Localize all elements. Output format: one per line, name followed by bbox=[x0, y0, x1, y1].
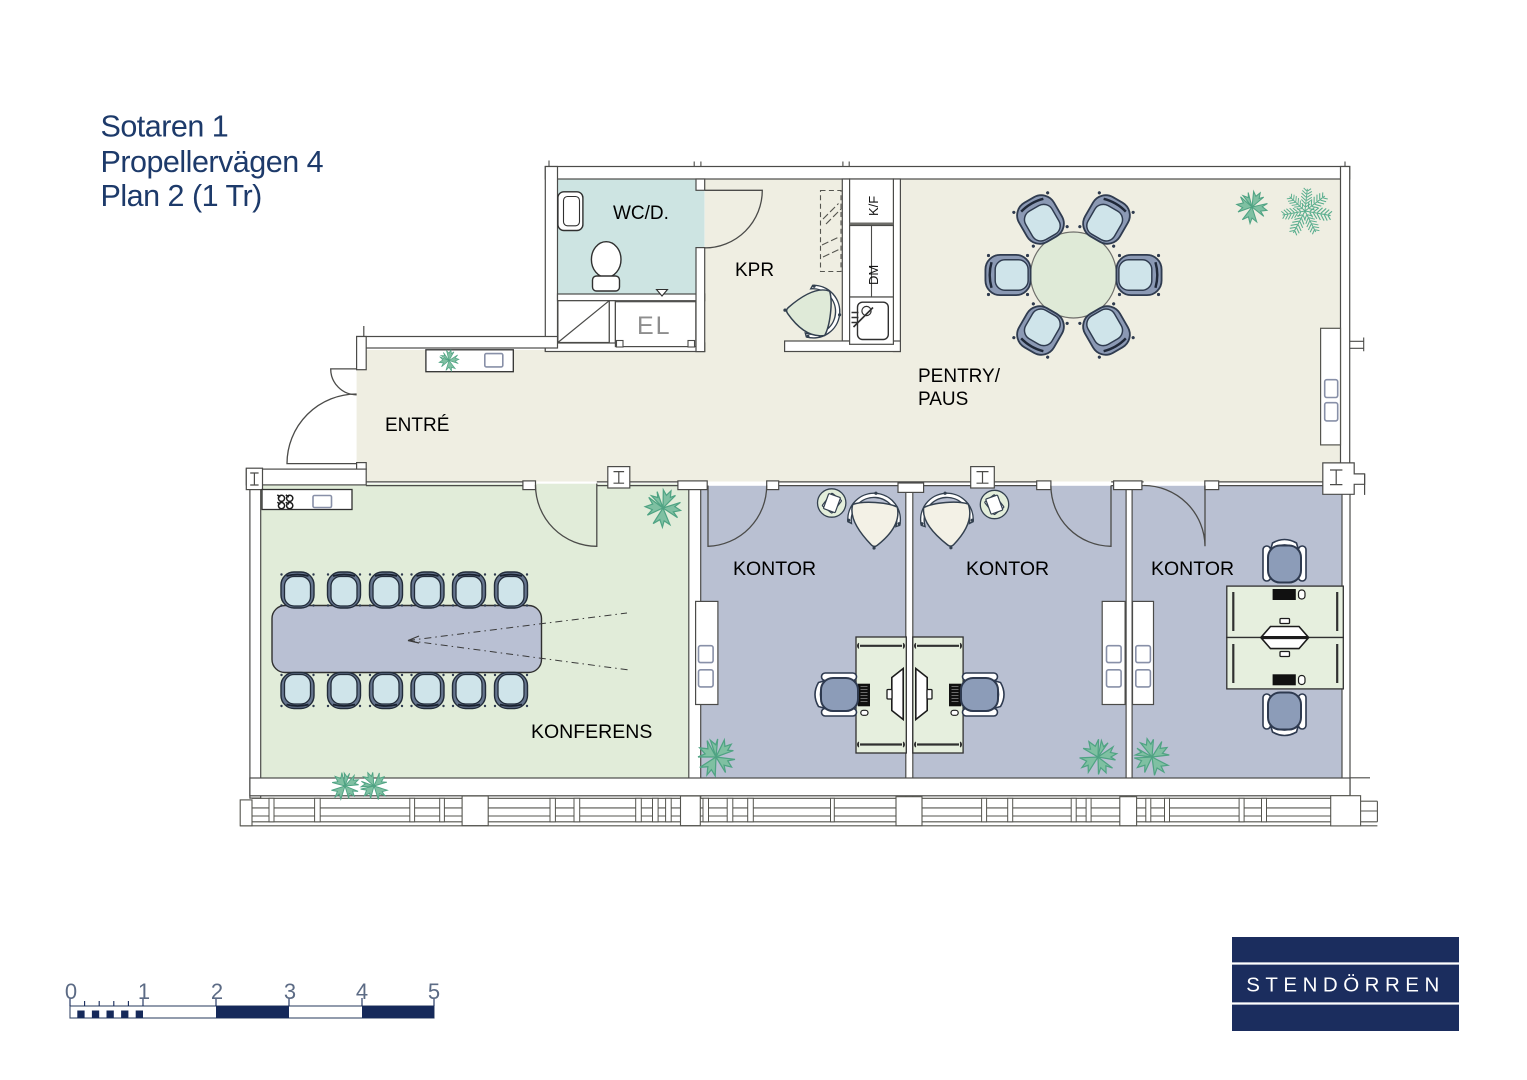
svg-text:KONFERENS: KONFERENS bbox=[531, 721, 652, 743]
svg-text:0: 0 bbox=[65, 979, 77, 1004]
svg-text:ENTRÉ: ENTRÉ bbox=[385, 415, 449, 436]
svg-text:WC/D.: WC/D. bbox=[613, 203, 669, 224]
svg-text:4: 4 bbox=[356, 979, 368, 1004]
svg-text:2: 2 bbox=[211, 979, 223, 1004]
svg-text:Plan 2 (1 Tr): Plan 2 (1 Tr) bbox=[101, 179, 262, 213]
svg-text:Propellervägen 4: Propellervägen 4 bbox=[101, 145, 324, 179]
svg-text:K/F: K/F bbox=[866, 196, 881, 216]
svg-text:3: 3 bbox=[284, 979, 296, 1004]
svg-text:KPR: KPR bbox=[735, 260, 774, 281]
svg-text:5: 5 bbox=[428, 979, 440, 1004]
svg-text:KONTOR: KONTOR bbox=[733, 558, 816, 580]
svg-text:DM: DM bbox=[866, 265, 881, 285]
svg-text:Sotaren 1: Sotaren 1 bbox=[101, 110, 229, 144]
svg-text:KONTOR: KONTOR bbox=[966, 558, 1049, 580]
svg-text:KONTOR: KONTOR bbox=[1151, 558, 1234, 580]
svg-text:1: 1 bbox=[138, 979, 150, 1004]
svg-text:STENDÖRREN: STENDÖRREN bbox=[1246, 974, 1445, 997]
svg-text:PAUS: PAUS bbox=[918, 389, 968, 410]
svg-text:EL: EL bbox=[637, 312, 672, 340]
svg-text:PENTRY/: PENTRY/ bbox=[918, 366, 1001, 387]
